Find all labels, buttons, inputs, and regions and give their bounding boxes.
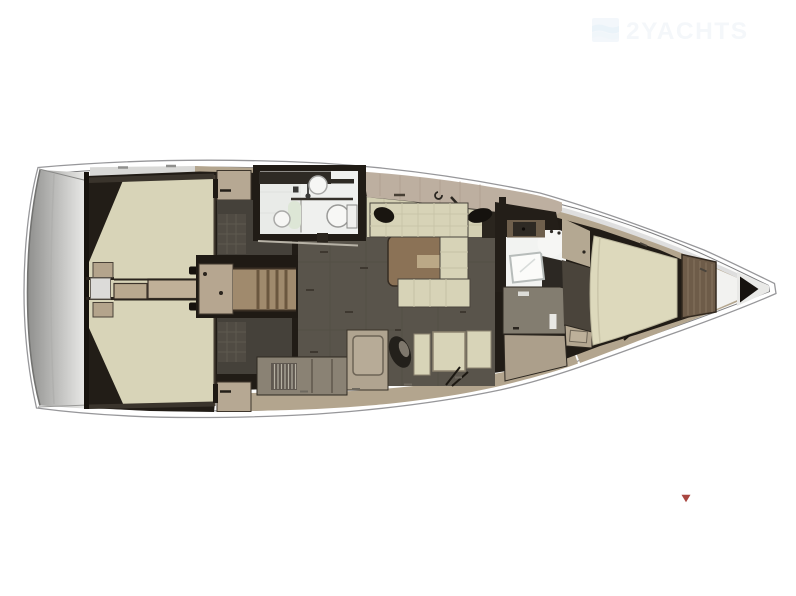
svg-text:2YACHTS: 2YACHTS xyxy=(626,18,749,45)
